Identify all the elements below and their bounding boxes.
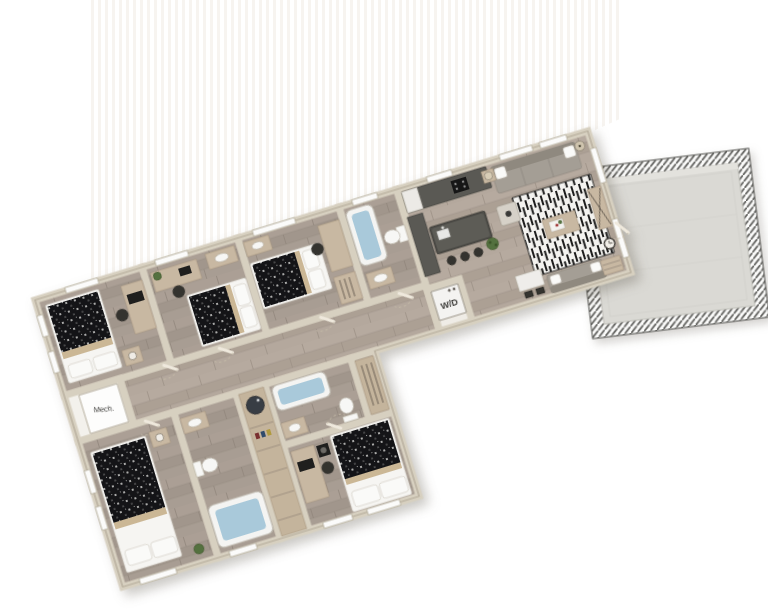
floor-plan-canvas: W/D Mech. (0, 0, 768, 614)
floor-plan-rendering: W/D Mech. (0, 0, 768, 614)
mech-label: Mech. (93, 404, 114, 415)
